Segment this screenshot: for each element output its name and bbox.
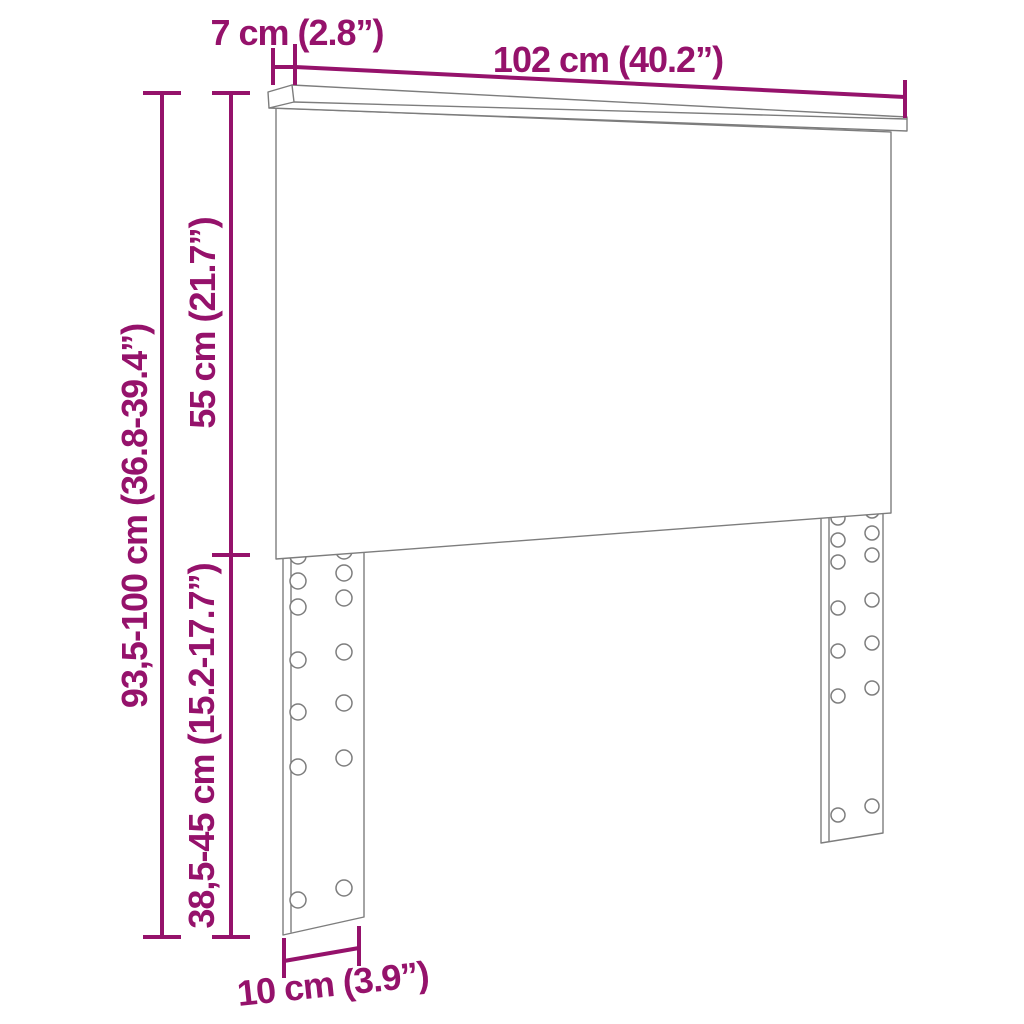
left-leg xyxy=(283,543,364,935)
leg-width-dimension-label: 10 cm (3.9”) xyxy=(235,953,430,1014)
diagram-canvas: 93,5-100 cm (36.8-39.4”) 55 cm (21.7”) 3… xyxy=(0,0,1024,1024)
mounting-hole xyxy=(290,599,306,615)
mounting-hole xyxy=(336,590,352,606)
panel-height-dimension-label: 55 cm (21.7”) xyxy=(182,217,223,428)
mounting-hole xyxy=(336,695,352,711)
split-height-dimension: 55 cm (21.7”) 38,5-45 cm (15.2-17.7”) xyxy=(181,93,250,937)
mounting-hole xyxy=(831,601,845,615)
depth-dimension-label: 7 cm (2.8”) xyxy=(210,12,383,53)
mounting-hole xyxy=(290,892,306,908)
mounting-hole xyxy=(865,636,879,650)
mounting-hole xyxy=(865,799,879,813)
mounting-hole xyxy=(336,880,352,896)
mounting-hole xyxy=(336,644,352,660)
mounting-hole xyxy=(290,759,306,775)
total-height-dimension: 93,5-100 cm (36.8-39.4”) xyxy=(114,93,181,937)
leg-width-dimension-line xyxy=(284,948,359,961)
mounting-hole xyxy=(865,681,879,695)
mounting-hole xyxy=(336,750,352,766)
headboard-drawing xyxy=(268,85,907,935)
leg-height-dimension-label: 38,5-45 cm (15.2-17.7”) xyxy=(181,563,222,928)
mounting-hole xyxy=(831,533,845,547)
headboard-panel xyxy=(276,108,891,559)
mounting-hole xyxy=(865,526,879,540)
mounting-hole xyxy=(831,555,845,569)
mounting-hole xyxy=(865,548,879,562)
total-height-dimension-label: 93,5-100 cm (36.8-39.4”) xyxy=(114,324,155,708)
width-dimension-label: 102 cm (40.2”) xyxy=(493,39,723,80)
mounting-hole xyxy=(290,652,306,668)
mounting-hole xyxy=(831,644,845,658)
mounting-hole xyxy=(831,689,845,703)
right-leg xyxy=(821,504,883,843)
dimension-diagram: 93,5-100 cm (36.8-39.4”) 55 cm (21.7”) 3… xyxy=(0,0,1024,1024)
mounting-hole xyxy=(865,593,879,607)
mounting-hole xyxy=(336,565,352,581)
mounting-hole xyxy=(290,704,306,720)
mounting-hole xyxy=(290,573,306,589)
depth-dimension: 7 cm (2.8”) xyxy=(210,12,383,85)
leg-width-dimension: 10 cm (3.9”) xyxy=(235,926,430,1014)
mounting-hole xyxy=(831,808,845,822)
